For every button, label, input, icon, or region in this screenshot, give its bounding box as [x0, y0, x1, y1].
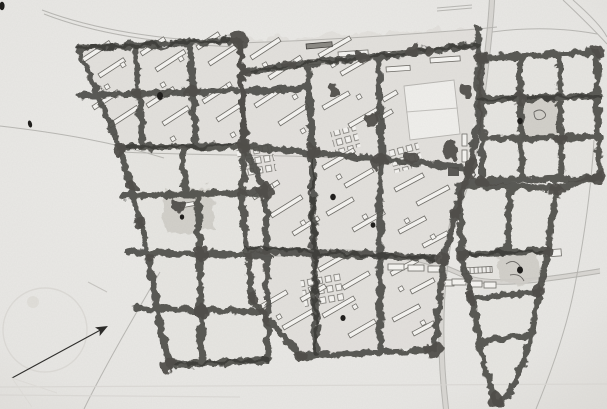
site-plan-drawing — [0, 0, 607, 409]
scanned-plan-page — [0, 0, 607, 409]
paper-grain-overlay — [0, 0, 607, 409]
